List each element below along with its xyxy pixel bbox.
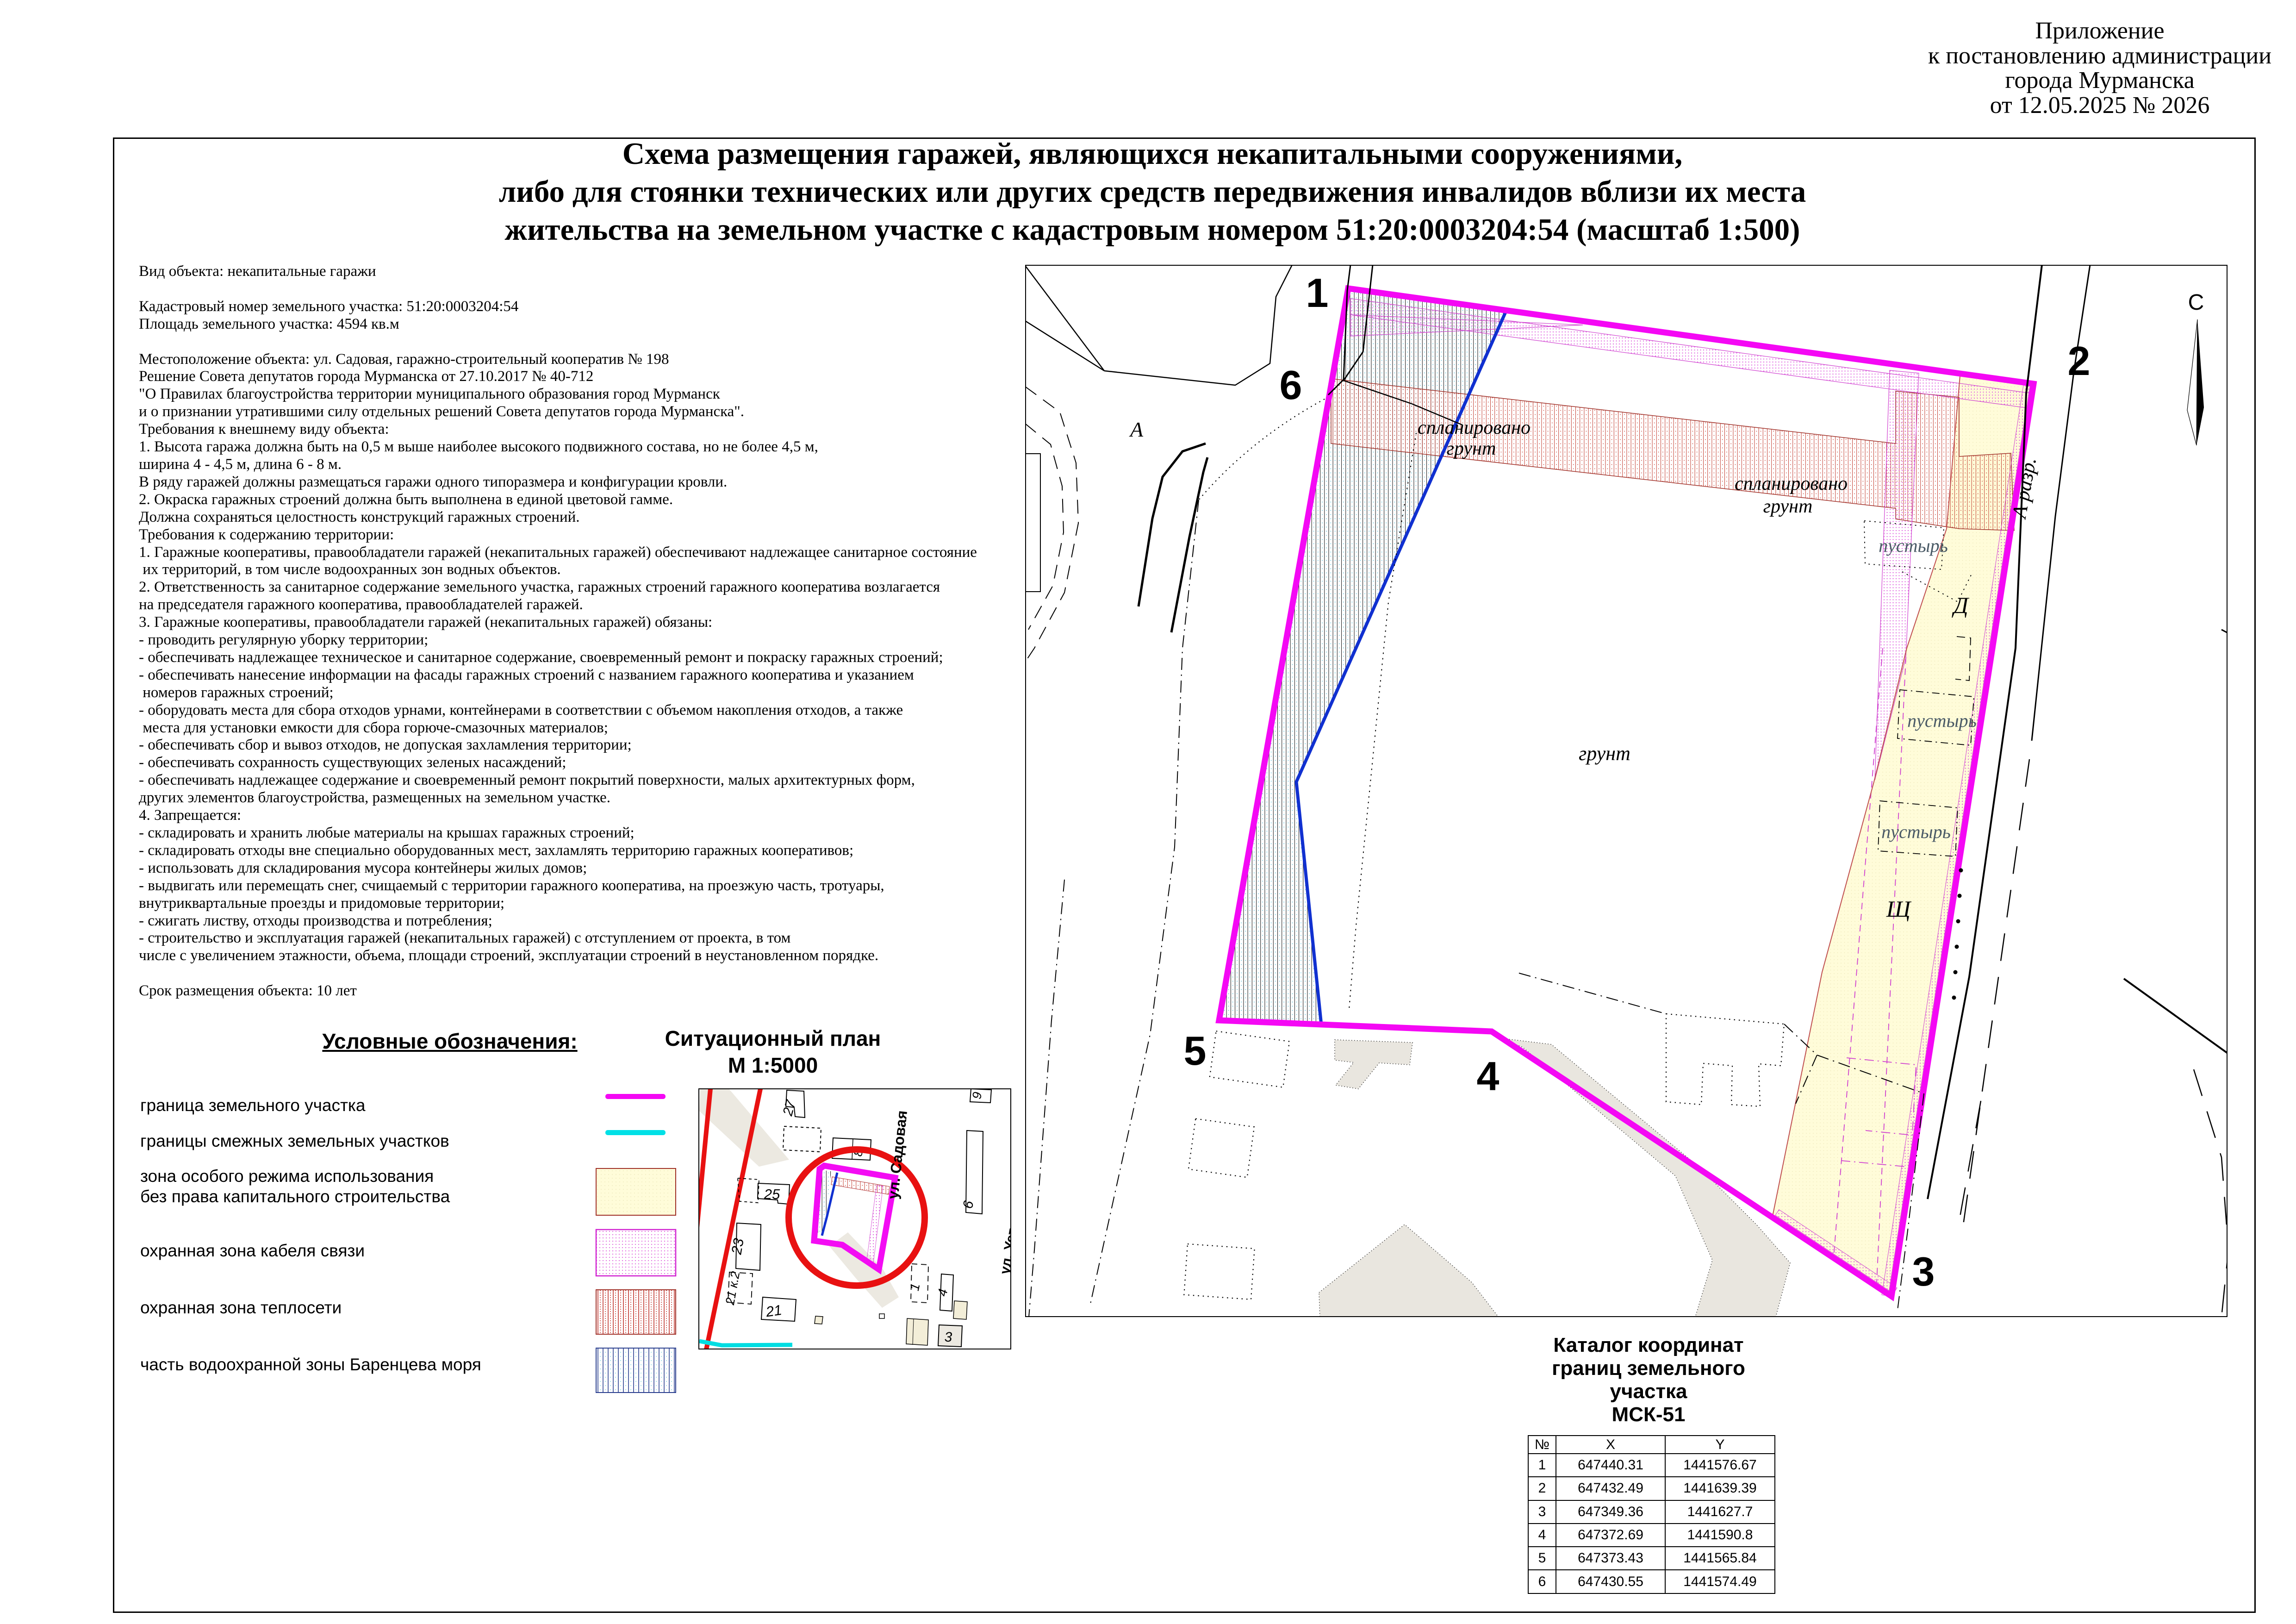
- svg-text:грунт: грунт: [1579, 742, 1630, 765]
- svg-text:4: 4: [1477, 1053, 1500, 1099]
- svg-text:спланировано: спланировано: [1735, 473, 1848, 494]
- svg-text:грунт: грунт: [1763, 496, 1813, 517]
- svg-text:А: А: [1129, 418, 1144, 441]
- svg-text:1: 1: [1306, 270, 1329, 316]
- svg-text:Д: Д: [1952, 592, 1970, 618]
- svg-text:спланировано: спланировано: [1418, 417, 1531, 438]
- svg-text:3: 3: [1912, 1249, 1935, 1294]
- svg-text:Щ: Щ: [1886, 896, 1912, 922]
- svg-text:21: 21: [765, 1302, 783, 1320]
- svg-text:пустырь: пустырь: [1881, 821, 1951, 842]
- svg-text:пустырь: пустырь: [1907, 710, 1977, 731]
- svg-text:25: 25: [764, 1186, 780, 1202]
- svg-text:С: С: [2188, 290, 2204, 315]
- svg-text:3: 3: [945, 1330, 952, 1345]
- svg-text:5: 5: [1184, 1028, 1207, 1074]
- svg-text:2: 2: [2068, 338, 2091, 384]
- svg-text:грунт: грунт: [1447, 438, 1496, 459]
- svg-text:6: 6: [1280, 362, 1302, 408]
- svg-text:23: 23: [728, 1237, 747, 1256]
- svg-text:пустырь: пустырь: [1879, 535, 1948, 556]
